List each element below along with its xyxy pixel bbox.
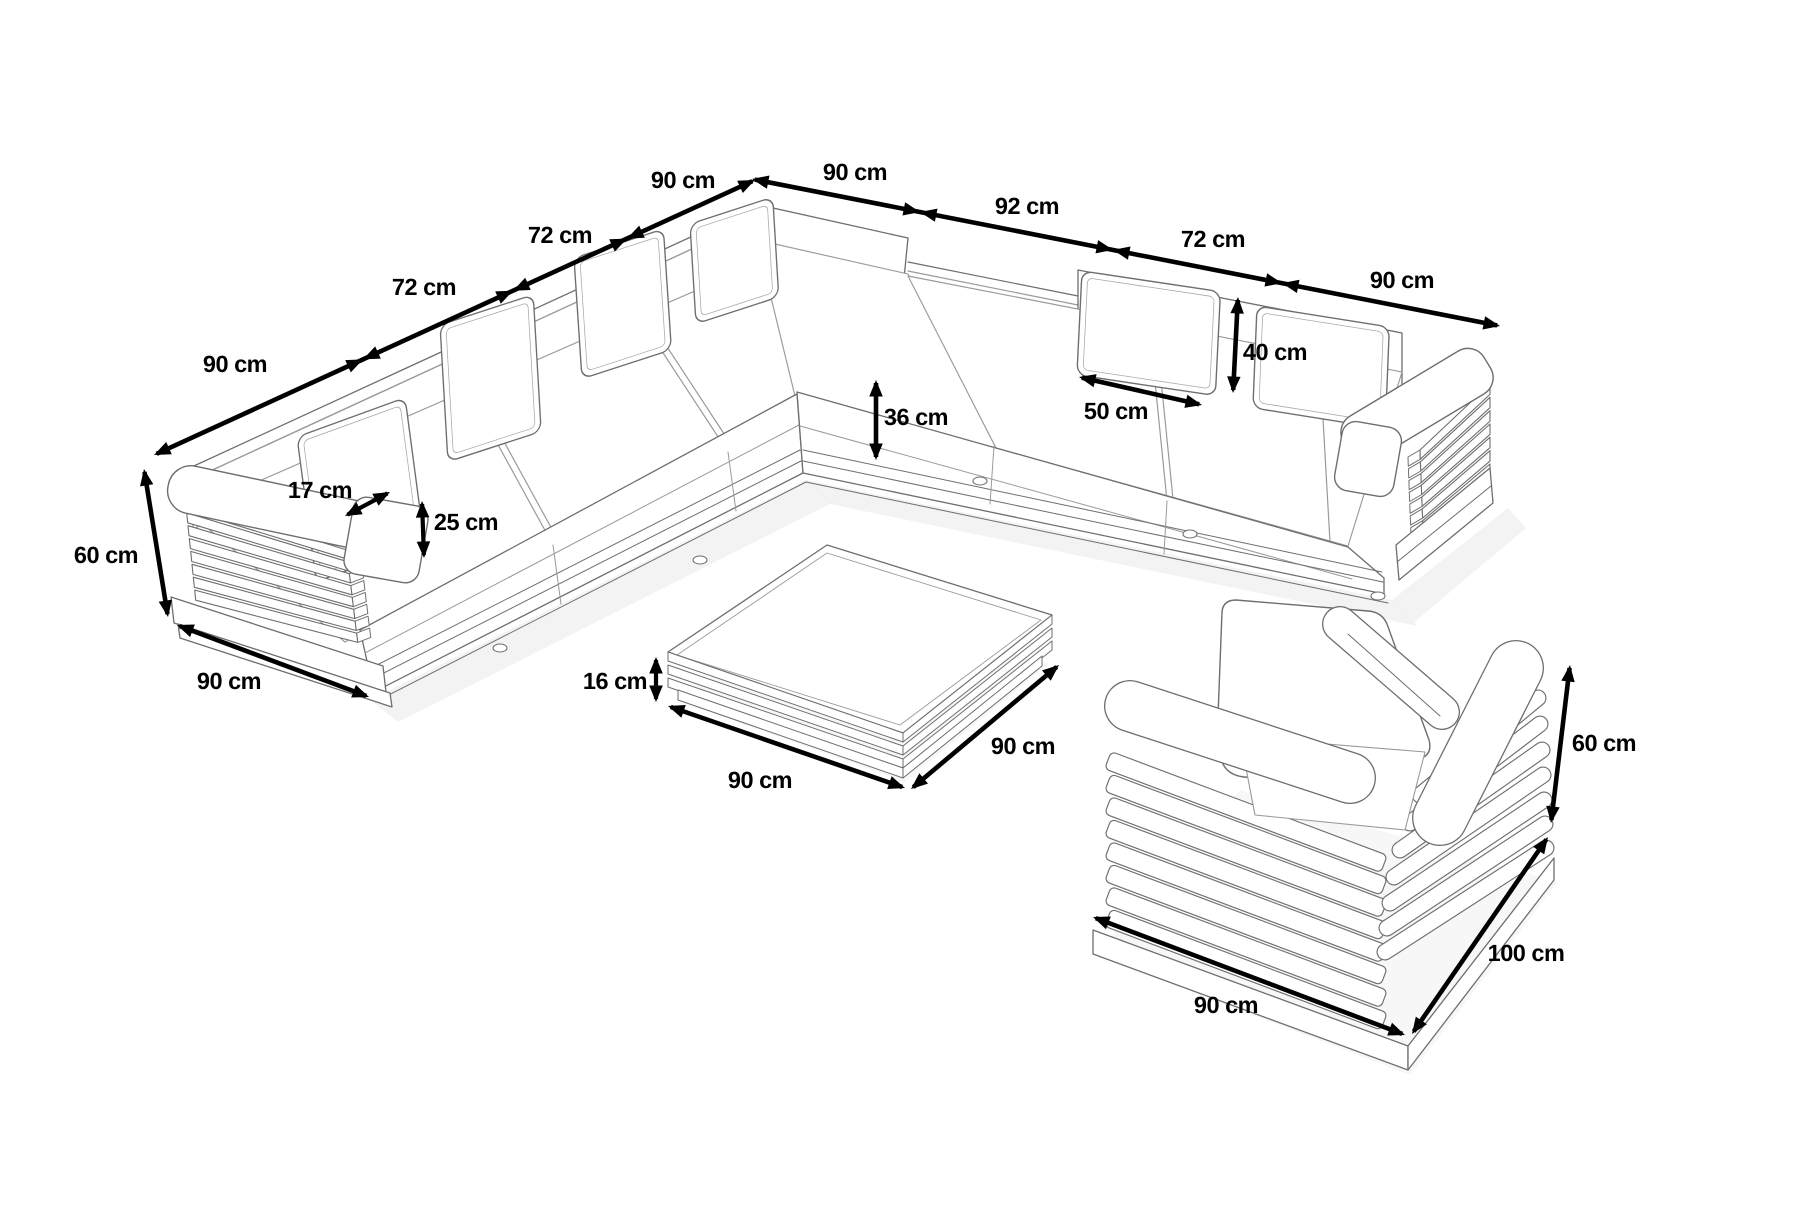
svg-text:72 cm: 72 cm bbox=[392, 274, 456, 300]
svg-text:90 cm: 90 cm bbox=[203, 351, 267, 377]
svg-text:25 cm: 25 cm bbox=[434, 509, 498, 535]
svg-text:72 cm: 72 cm bbox=[528, 222, 592, 248]
svg-text:17 cm: 17 cm bbox=[288, 477, 352, 503]
svg-text:90 cm: 90 cm bbox=[728, 767, 792, 793]
svg-text:100 cm: 100 cm bbox=[1488, 940, 1565, 966]
svg-text:60 cm: 60 cm bbox=[1572, 730, 1636, 756]
svg-text:90 cm: 90 cm bbox=[1370, 267, 1434, 293]
svg-text:90 cm: 90 cm bbox=[197, 668, 261, 694]
svg-text:60 cm: 60 cm bbox=[74, 542, 138, 568]
svg-text:40 cm: 40 cm bbox=[1243, 339, 1307, 365]
svg-text:90 cm: 90 cm bbox=[823, 159, 887, 185]
svg-text:90 cm: 90 cm bbox=[651, 167, 715, 193]
svg-text:72 cm: 72 cm bbox=[1181, 226, 1245, 252]
svg-text:90 cm: 90 cm bbox=[1194, 992, 1258, 1018]
svg-text:90 cm: 90 cm bbox=[991, 733, 1055, 759]
svg-text:92 cm: 92 cm bbox=[995, 193, 1059, 219]
svg-text:16 cm: 16 cm bbox=[583, 668, 647, 694]
svg-text:36 cm: 36 cm bbox=[884, 404, 948, 430]
svg-text:50 cm: 50 cm bbox=[1084, 398, 1148, 424]
